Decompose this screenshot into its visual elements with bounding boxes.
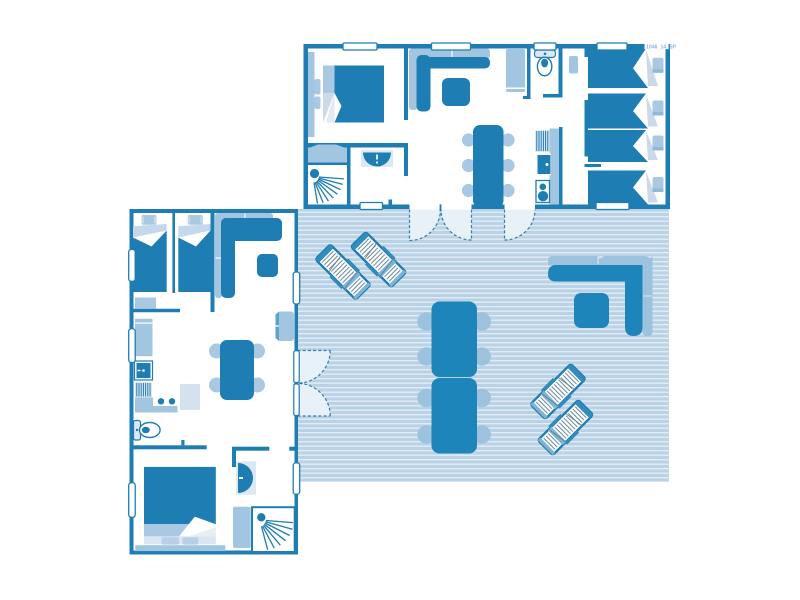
svg-text:1046_14_SP: 1046_14_SP <box>646 44 677 50</box>
